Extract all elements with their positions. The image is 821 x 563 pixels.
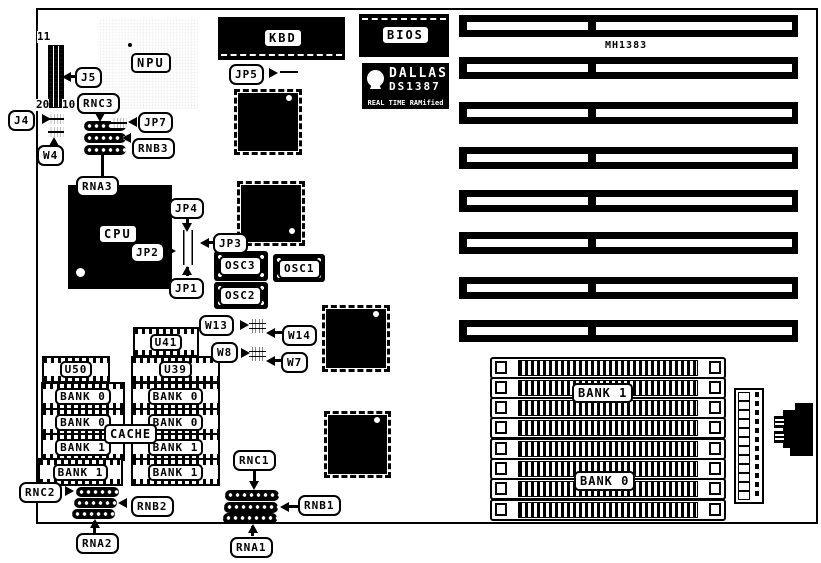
simm-socket — [490, 438, 726, 460]
bios-chip-divider — [362, 18, 446, 20]
callout-jp2: JP2 — [130, 242, 165, 263]
cache-chip-bank0: BANK 0 — [41, 382, 125, 410]
isa-slot — [459, 147, 798, 169]
isa-slot — [459, 277, 798, 299]
chip-label: BANK 1 — [148, 464, 204, 481]
resistor-network-rnc2 — [76, 487, 119, 497]
qfp-chip — [324, 411, 391, 478]
cache-area-label: CACHE — [104, 424, 157, 444]
chip-label: BANK 1 — [55, 439, 111, 456]
qfp-pin1-dot — [289, 228, 295, 234]
dallas-tagline: REAL TIME RAMified — [364, 99, 447, 107]
callout-j5: J5 — [75, 67, 102, 88]
dallas-part-number: DS1387 — [389, 80, 441, 93]
callout-jp4: JP4 — [169, 198, 204, 219]
qfp-chip — [322, 305, 390, 372]
jumper-w8 — [249, 347, 266, 361]
osc1-label: OSC1 — [278, 259, 321, 279]
jumper-jp7 — [111, 118, 127, 128]
resistor-network-rnc1 — [225, 490, 279, 501]
simm-socket — [490, 499, 726, 521]
callout-arrow — [182, 266, 192, 275]
chip-label: BANK 0 — [55, 388, 111, 405]
chip-label: U39 — [159, 361, 192, 378]
callout-rnb1: RNB1 — [298, 495, 341, 516]
simm-bank1-label: BANK 1 — [572, 383, 633, 403]
leader-line — [101, 155, 104, 176]
callout-w14: W14 — [282, 325, 317, 346]
callout-rna1: RNA1 — [230, 537, 273, 558]
osc2-label: OSC2 — [219, 286, 262, 306]
cache-chip-u41: U41 — [133, 327, 199, 357]
simm-socket — [490, 357, 726, 379]
dallas-brand: DALLAS — [389, 66, 448, 81]
callout-arrow — [269, 68, 278, 78]
j5-pin-20-label: 20 — [36, 99, 49, 111]
resistor-network-rnb1 — [224, 502, 278, 513]
callout-arrow — [182, 223, 192, 232]
keyboard-din-connector — [783, 410, 813, 448]
chip-label: BANK 1 — [53, 464, 109, 481]
jumper-w4 — [48, 127, 64, 137]
chip-label: U50 — [60, 361, 93, 378]
resistor-network-rna2 — [72, 509, 115, 519]
jumper-block-jp1-jp4 — [176, 230, 200, 265]
callout-rna3: RNA3 — [76, 176, 119, 197]
callout-rnb3: RNB3 — [132, 138, 175, 159]
callout-jp7: JP7 — [138, 112, 173, 133]
callout-jp5: JP5 — [229, 64, 264, 85]
dallas-logo-icon — [367, 70, 384, 87]
jumper-w13 — [249, 319, 266, 333]
simm-bank0-label: BANK 0 — [574, 471, 635, 491]
callout-w8: W8 — [211, 342, 238, 363]
keyboard-connector-pins — [774, 431, 785, 443]
callout-jp3: JP3 — [213, 233, 248, 254]
motherboard-diagram: MH1383 11 20 10 J5 NPU J4 W4 RNC3 JP7 RN… — [0, 0, 821, 563]
chip-label: BANK 0 — [55, 414, 111, 431]
callout-arrow — [249, 481, 259, 490]
callout-rna2: RNA2 — [76, 533, 119, 554]
cache-chip-bank0: BANK 0 — [131, 382, 220, 410]
chip-label: U41 — [150, 334, 183, 351]
callout-w13: W13 — [199, 315, 234, 336]
callout-jp1: JP1 — [169, 278, 204, 299]
qfp-pin1-dot — [373, 311, 379, 317]
j5-pin-10-label: 10 — [62, 99, 75, 111]
resistor-network-rnb3 — [84, 133, 126, 143]
callout-rnc1: RNC1 — [233, 450, 276, 471]
resistor-network-rnb2 — [74, 498, 117, 508]
isa-slot — [459, 320, 798, 342]
callout-w4: W4 — [37, 145, 64, 166]
cache-chip-bank1: BANK 1 — [131, 458, 220, 486]
callout-arrow — [90, 519, 100, 528]
callout-w7: W7 — [281, 352, 308, 373]
osc3-label: OSC3 — [219, 256, 262, 276]
npu-label: NPU — [131, 53, 171, 73]
kbd-chip-divider — [221, 54, 342, 56]
cache-chip-u39: U39 — [131, 356, 220, 383]
isa-slot — [459, 15, 798, 37]
isa-slot — [459, 232, 798, 254]
callout-arrow — [118, 498, 127, 508]
callout-arrow — [241, 348, 250, 358]
chipset-part-number: MH1383 — [605, 40, 647, 52]
callout-rnc2: RNC2 — [19, 482, 62, 503]
j5-pin-11-label: 11 — [37, 31, 50, 43]
callout-arrow — [248, 524, 258, 533]
cpu-label: CPU — [98, 224, 138, 244]
isa-slot — [459, 102, 798, 124]
keyboard-din-connector — [790, 448, 813, 456]
npu-pin1-dot — [128, 43, 132, 47]
isa-slot — [459, 57, 798, 79]
qfp-pin1-dot — [286, 95, 292, 101]
leader-line — [273, 331, 282, 334]
callout-arrow — [167, 246, 176, 256]
bios-label: BIOS — [381, 25, 430, 45]
dallas-rtc-chip: DALLAS DS1387 REAL TIME RAMified — [362, 63, 449, 109]
callout-arrow — [42, 114, 51, 124]
kbd-label: KBD — [263, 28, 303, 48]
isa-slot — [459, 190, 798, 212]
chip-label: BANK 0 — [148, 388, 204, 405]
resistor-network-rna3 — [84, 145, 126, 155]
simm-socket — [490, 417, 726, 439]
callout-arrow — [128, 117, 137, 127]
leader-line — [287, 505, 298, 508]
callout-arrow — [65, 486, 74, 496]
keyboard-connector-pins — [774, 416, 785, 428]
callout-rnb2: RNB2 — [131, 496, 174, 517]
qfp-pin1-dot — [374, 417, 380, 423]
cache-chip-u50: U50 — [42, 356, 110, 383]
callout-j4: J4 — [8, 110, 35, 131]
resistor-network-rna1 — [223, 513, 277, 524]
power-connector — [734, 388, 764, 504]
callout-arrow — [240, 320, 249, 330]
callout-arrow — [122, 133, 131, 143]
cpu-pin1-dot — [76, 268, 85, 277]
callout-rnc3: RNC3 — [77, 93, 120, 114]
callout-arrow — [95, 113, 105, 122]
jumper-jp5 — [280, 67, 298, 77]
leader-line — [273, 359, 281, 362]
